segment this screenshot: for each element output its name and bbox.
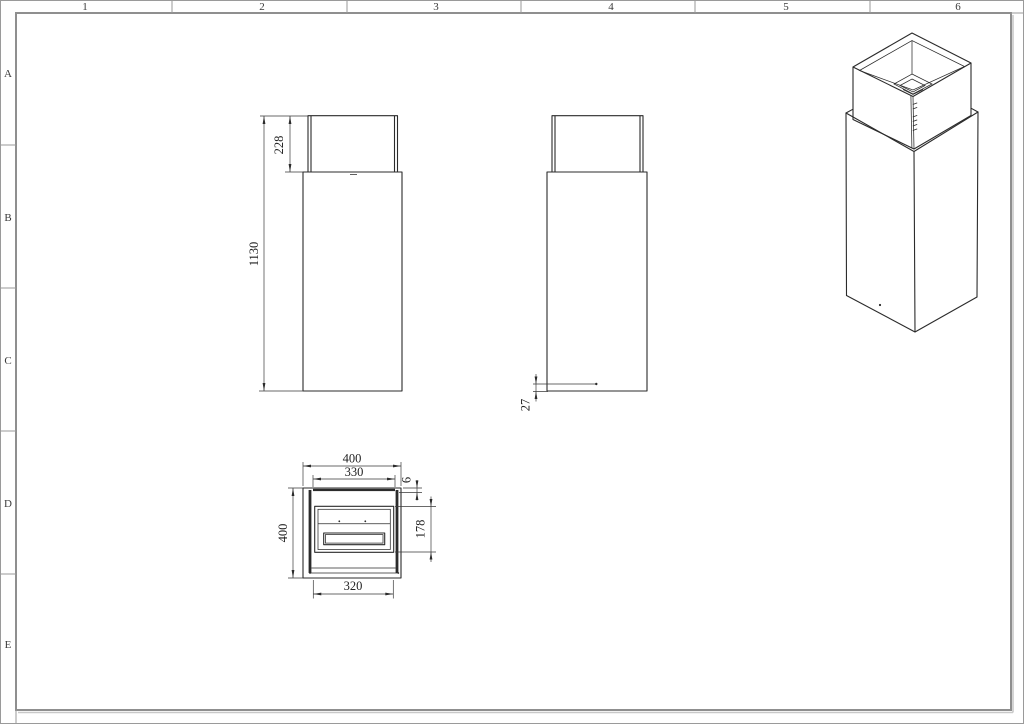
plan-burner-dot-left (338, 520, 340, 522)
zone-label-3: 3 (433, 1, 439, 13)
side-extension-lines (533, 374, 597, 402)
zone-label-6: 6 (955, 1, 961, 13)
zone-label-2: 2 (259, 1, 265, 13)
dim-plan-glass-width: 330 (345, 465, 364, 479)
drawing-sheet: 1 2 3 4 5 6 A B C D E 228 1130 (0, 0, 1024, 724)
dim-plan-outer-depth: 400 (276, 524, 290, 543)
drawing-frame (16, 13, 1011, 710)
side-glass-panel (552, 116, 643, 172)
front-dimension-lines (264, 116, 290, 391)
front-glass-panel (308, 116, 398, 172)
sheet-outline (1, 1, 1024, 724)
plan-glass-bar-left (309, 490, 312, 573)
frame-strip-extensions (16, 13, 1024, 724)
plan-glass-bar-top (313, 489, 395, 491)
dim-front-glass-height: 228 (272, 136, 286, 155)
isometric-view (846, 33, 978, 332)
frame-shadow (18, 15, 1013, 713)
front-body (303, 172, 402, 391)
plan-burner-slot-inner (325, 535, 383, 544)
sheet-frame: 1 2 3 4 5 6 A B C D E (0, 0, 1024, 724)
dim-plan-burner-depth: 178 (414, 520, 428, 539)
plan-glass-bar-right (396, 490, 399, 573)
dim-side-base-offset: 27 (519, 399, 533, 412)
plan-burner-dot-right (364, 520, 366, 522)
front-extension-lines (259, 116, 308, 391)
cad-drawing-canvas: 1 2 3 4 5 6 A B C D E 228 1130 (0, 0, 1024, 724)
zone-label-D: D (4, 498, 12, 510)
zone-label-A: A (4, 68, 12, 80)
plan-dimension-lines (293, 466, 431, 594)
iso-face-dot (879, 304, 881, 306)
side-leader-dot (595, 383, 597, 385)
side-view-dimensions: 27 (519, 374, 598, 411)
zone-label-E: E (5, 639, 12, 651)
plan-burner-box-outer (315, 506, 394, 552)
plan-view (303, 488, 401, 578)
zone-label-1: 1 (82, 1, 88, 13)
zone-label-C: C (4, 355, 11, 367)
dim-plan-opening-width: 320 (344, 579, 363, 593)
zone-label-4: 4 (608, 1, 614, 13)
iso-column-bottom-edges (847, 296, 978, 333)
side-view (547, 116, 647, 391)
front-dimension-arrows (263, 116, 292, 391)
side-body (547, 172, 647, 391)
dim-front-total-height: 1130 (247, 242, 261, 267)
zone-label-B: B (4, 212, 11, 224)
zone-column-labels: 1 2 3 4 5 6 (82, 1, 961, 13)
column-zone-separators (172, 0, 870, 13)
iso-glass-front-corner (911, 95, 914, 149)
plan-view-dimensions: 400 330 6 178 400 320 (276, 452, 436, 599)
zone-row-labels: A B C D E (4, 68, 12, 651)
plan-corner-dot-left (309, 572, 311, 574)
dim-plan-glass-offset: 6 (400, 477, 414, 483)
plan-corner-dot-right (397, 572, 399, 574)
front-view-dimensions: 228 1130 (247, 116, 308, 391)
dim-plan-outer-width: 400 (343, 452, 362, 466)
front-view (303, 116, 402, 391)
iso-column-top-back-edges (846, 108, 978, 113)
zone-label-5: 5 (783, 1, 789, 13)
plan-front-edge-lines (310, 568, 398, 573)
